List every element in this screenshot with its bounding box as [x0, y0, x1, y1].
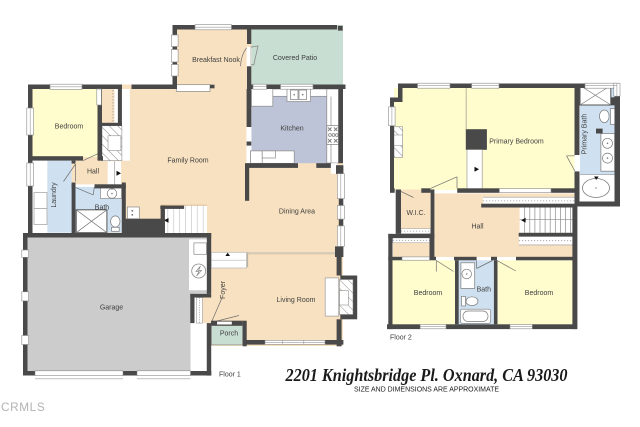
svg-text:2201 Knightsbridge Pl. Oxnard,: 2201 Knightsbridge Pl. Oxnard, CA 93030 [285, 365, 568, 385]
svg-text:Hall: Hall [471, 223, 484, 230]
svg-text:Porch: Porch [220, 331, 238, 338]
svg-text:Hall: Hall [87, 168, 100, 175]
svg-text:Family Room: Family Room [167, 157, 208, 164]
svg-text:Laundry: Laundry [51, 182, 58, 208]
svg-text:Garage: Garage [100, 304, 123, 311]
svg-text:Primary Bedroom: Primary Bedroom [489, 138, 544, 145]
svg-text:Bedroom: Bedroom [525, 290, 554, 297]
svg-text:Breakfast Nook: Breakfast Nook [192, 57, 240, 64]
svg-text:Floor 1: Floor 1 [219, 372, 241, 379]
svg-text:W.I.C.: W.I.C. [406, 210, 425, 217]
svg-text:Floor 2: Floor 2 [390, 335, 412, 342]
svg-text:Primary Bath: Primary Bath [581, 114, 588, 155]
svg-text:Living Room: Living Room [277, 297, 316, 304]
svg-text:Bedroom: Bedroom [55, 123, 84, 130]
svg-text:Dining Area: Dining Area [279, 208, 315, 215]
svg-text:Kitchen: Kitchen [280, 125, 303, 132]
svg-text:CRMLS: CRMLS [1, 400, 45, 414]
svg-text:SIZE AND DIMENSIONS ARE APPROX: SIZE AND DIMENSIONS ARE APPROXIMATE [354, 385, 499, 394]
svg-text:Covered Patio: Covered Patio [273, 55, 317, 62]
svg-text:Bedroom: Bedroom [414, 290, 443, 297]
svg-text:Bath: Bath [477, 286, 492, 293]
svg-text:Bath: Bath [95, 204, 110, 211]
svg-text:Foyer: Foyer [220, 280, 227, 299]
